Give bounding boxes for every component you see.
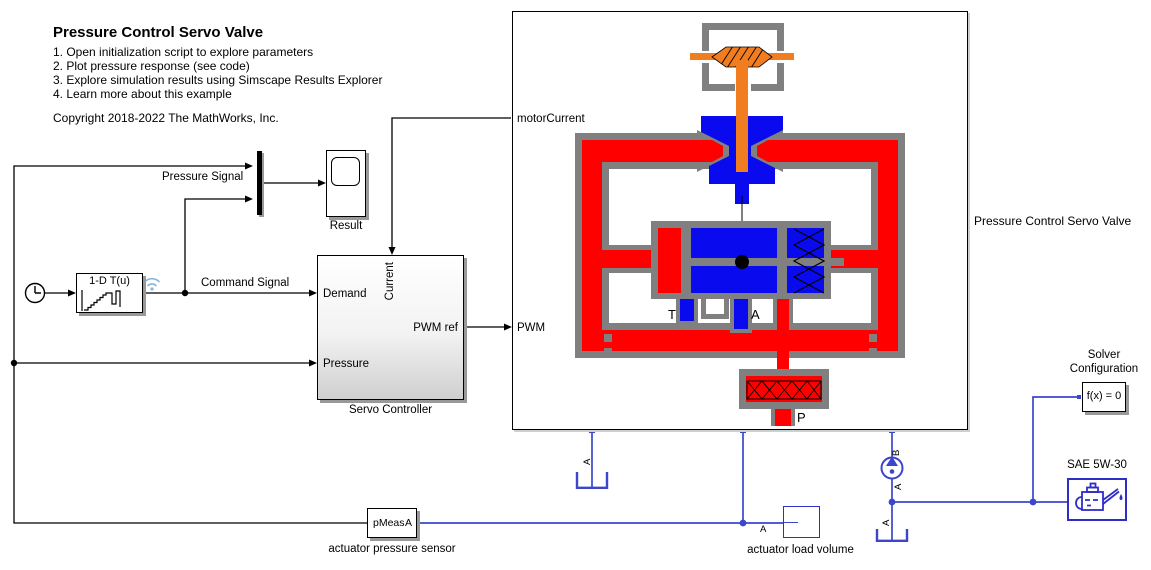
servo-valve-graphic: T A P <box>513 12 966 428</box>
load-volume-port-stub <box>784 522 798 524</box>
pressure-sensor-block[interactable]: pMeas A <box>367 508 417 538</box>
load-volume-port-label: A <box>760 524 767 535</box>
scope-screen-icon <box>331 157 360 186</box>
simulink-model-canvas: Pressure Control Servo Valve 1. Open ini… <box>0 0 1151 570</box>
tank-left-port-label: A <box>582 458 593 465</box>
solver-name-line2: Configuration <box>1070 363 1138 375</box>
valve-subsystem-name: Pressure Control Servo Valve <box>974 214 1131 228</box>
signal-logging-icon[interactable] <box>145 279 159 291</box>
check-valve-a-label: A <box>893 483 904 490</box>
check-valve-block[interactable] <box>882 457 903 479</box>
check-valve-b-label: B <box>891 450 902 456</box>
servo-valve-subsystem-block[interactable]: motorCurrent PWM <box>512 11 968 430</box>
servo-port-pressure: Pressure <box>323 358 369 370</box>
servo-controller-name: Servo Controller <box>317 404 464 416</box>
load-volume-block[interactable] <box>783 506 820 538</box>
solver-name-line1: Solver <box>1088 349 1121 361</box>
clock-block[interactable] <box>26 284 45 303</box>
pressure-sensor-name: actuator pressure sensor <box>327 543 457 555</box>
lookup-table-block[interactable]: 1-D T(u) <box>76 273 143 313</box>
pressure-sensor-label: pMeas <box>373 517 405 529</box>
pressure-signal-label[interactable]: Pressure Signal <box>162 171 243 183</box>
servo-port-pwm-ref: PWM ref <box>413 322 458 334</box>
scope-name: Result <box>316 220 376 232</box>
solver-configuration-name: Solver Configuration <box>1050 349 1151 376</box>
load-volume-name: actuator load volume <box>738 544 863 556</box>
tank-right-port-label: A <box>881 519 892 526</box>
wire-motorcurrent[interactable] <box>392 118 511 247</box>
wire-pressure-feedback[interactable] <box>14 166 367 523</box>
solver-configuration-block[interactable]: f(x) = 0 <box>1082 382 1126 412</box>
lookup-table-label: 1-D T(u) <box>77 275 142 287</box>
servo-port-current: Current <box>384 262 396 300</box>
scope-block[interactable] <box>326 150 366 217</box>
staircase-icon <box>77 288 140 312</box>
solver-fx-label: f(x) = 0 <box>1083 390 1125 402</box>
mux-block[interactable] <box>257 151 262 215</box>
dot-icon <box>890 469 895 474</box>
pressure-sensor-port-a: A <box>405 517 412 529</box>
command-signal-label[interactable]: Command Signal <box>201 277 289 289</box>
spool-a-label: A <box>751 307 760 322</box>
spool-p-label: P <box>797 410 806 425</box>
spool-t-label: T <box>668 307 676 322</box>
servo-controller-block[interactable]: Demand Pressure PWM ref Current <box>317 255 464 400</box>
oil-block-name: SAE 5W-30 <box>1056 459 1138 471</box>
servo-port-demand: Demand <box>323 288 366 300</box>
oil-block[interactable] <box>1067 478 1127 521</box>
oil-can-icon <box>1069 480 1125 519</box>
